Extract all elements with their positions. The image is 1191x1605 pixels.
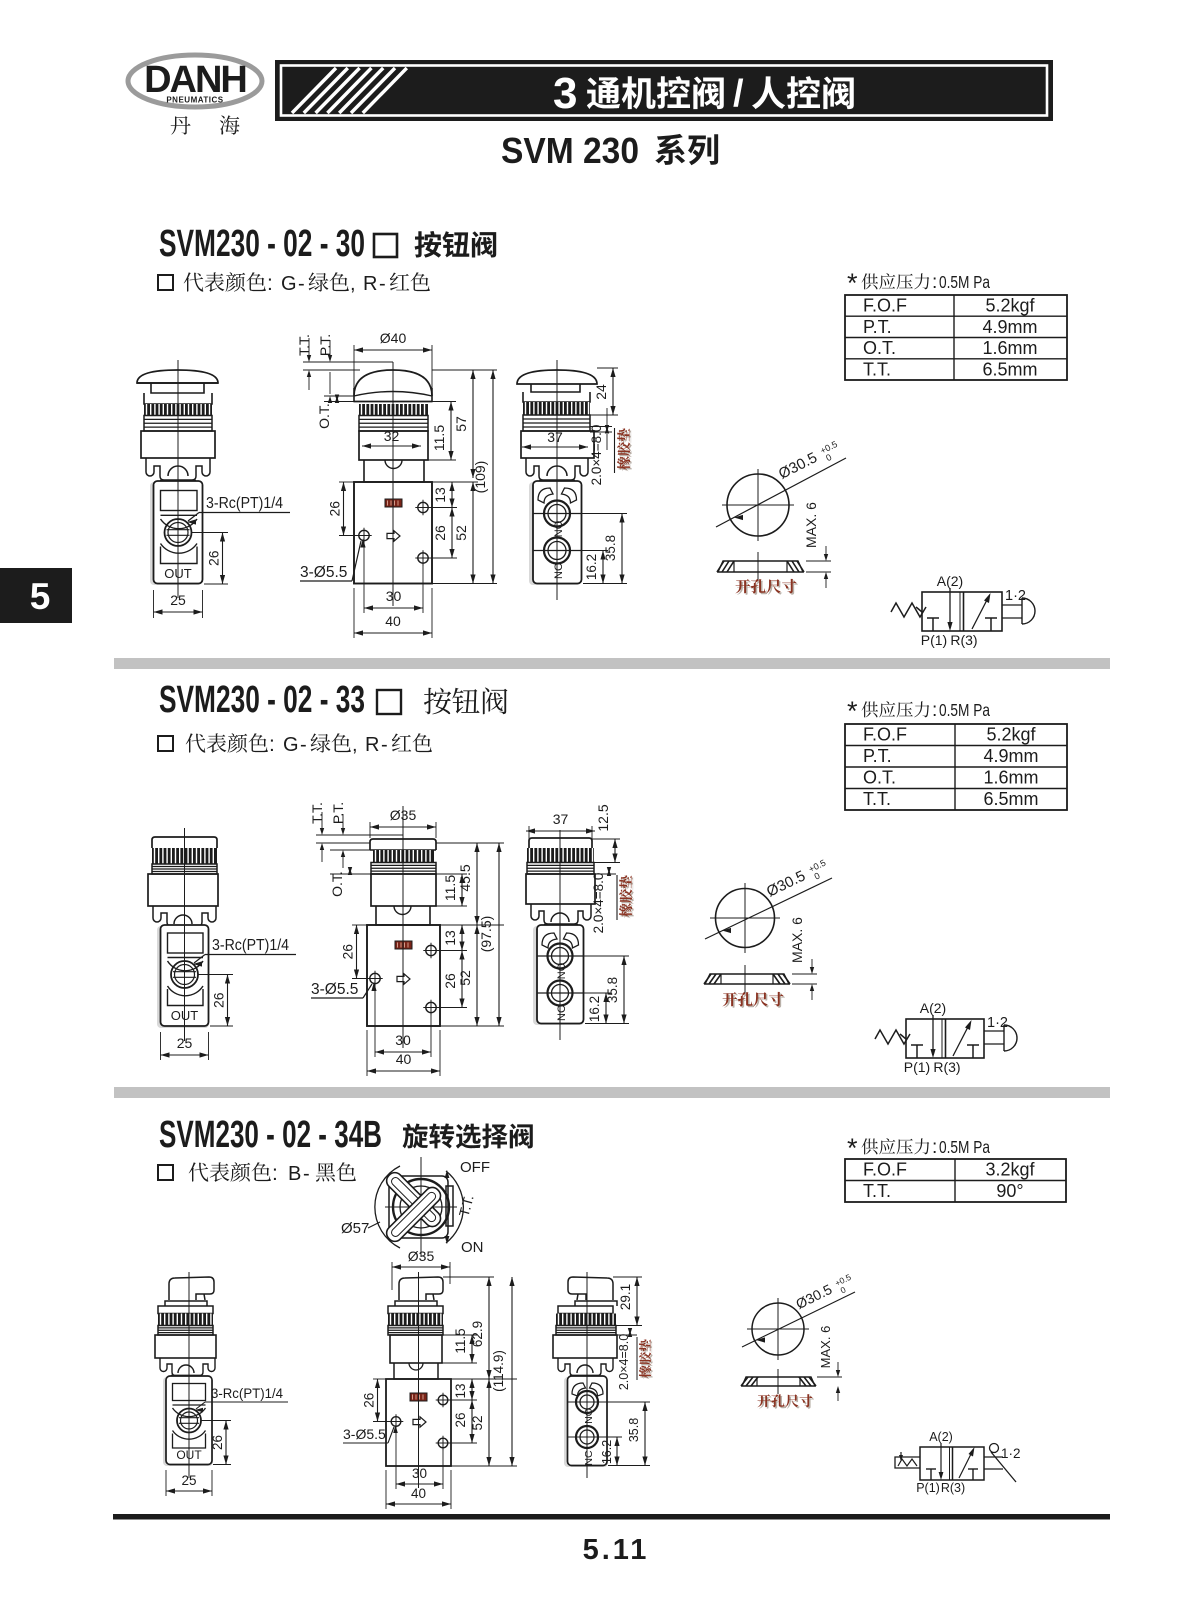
svg-text:F.O.F: F.O.F (863, 725, 907, 745)
svg-text:/: / (733, 73, 744, 115)
svg-text:3-Rc(PT)1/4: 3-Rc(PT)1/4 (211, 1385, 283, 1401)
svg-text:Ø40: Ø40 (380, 330, 407, 346)
svg-text:26: 26 (432, 525, 448, 541)
svg-text:2.0×4=8.0: 2.0×4=8.0 (589, 425, 604, 486)
svg-text:P(1): P(1) (921, 632, 947, 648)
svg-text:0.5M Pa: 0.5M Pa (939, 700, 990, 720)
svg-text:T.T.: T.T. (309, 802, 325, 824)
svg-text:Ø35: Ø35 (390, 807, 417, 823)
svg-text:5.2kgf: 5.2kgf (985, 296, 1035, 316)
svg-text:4.9mm: 4.9mm (982, 317, 1037, 337)
svg-text:P.T.: P.T. (317, 334, 333, 356)
svg-text:25: 25 (170, 592, 186, 608)
svg-text:40: 40 (385, 613, 401, 629)
svg-text:5.2kgf: 5.2kgf (986, 725, 1036, 745)
svg-text:90°: 90° (996, 1181, 1023, 1201)
svg-text:-: - (300, 734, 307, 756)
svg-text:SVM230 - 02 - 30: SVM230 - 02 - 30 (159, 223, 365, 265)
svg-text:-: - (379, 273, 386, 295)
svg-text:45.5: 45.5 (457, 864, 473, 891)
svg-text:26: 26 (327, 501, 343, 517)
svg-text:O.T.: O.T. (863, 338, 896, 358)
svg-text:-: - (303, 1163, 310, 1185)
svg-text:24: 24 (593, 384, 609, 400)
svg-text:P.T.: P.T. (863, 746, 892, 766)
svg-text:F.O.F: F.O.F (863, 296, 907, 316)
svg-text:NO: NO (553, 520, 565, 537)
svg-text:40: 40 (411, 1486, 426, 1501)
svg-text:NO: NO (556, 962, 568, 979)
svg-text:R(3): R(3) (933, 1059, 960, 1075)
svg-text:26: 26 (210, 1435, 225, 1450)
svg-text:,: , (350, 273, 356, 295)
svg-text::: : (932, 272, 937, 293)
svg-text:26: 26 (362, 1393, 377, 1408)
svg-text:(97.5): (97.5) (478, 916, 494, 953)
svg-text:6.5mm: 6.5mm (983, 789, 1038, 809)
svg-text:62.9: 62.9 (470, 1321, 485, 1347)
svg-text:A(2): A(2) (929, 1430, 953, 1444)
svg-text:ON: ON (461, 1239, 484, 1256)
svg-text:26: 26 (453, 1412, 468, 1427)
svg-text:(114.9): (114.9) (491, 1350, 506, 1392)
svg-text:R: R (365, 734, 379, 756)
svg-text:P(1): P(1) (904, 1059, 930, 1075)
svg-text:G: G (281, 273, 297, 295)
svg-text:32: 32 (384, 428, 400, 444)
svg-text:37: 37 (547, 429, 563, 445)
svg-text::: : (267, 272, 273, 295)
svg-text:*: * (847, 268, 858, 298)
svg-text:26: 26 (206, 550, 222, 566)
svg-text:3-Ø5.5: 3-Ø5.5 (343, 1426, 386, 1442)
svg-text:2.0×4=8.0: 2.0×4=8.0 (591, 873, 606, 934)
svg-text:16.2: 16.2 (587, 996, 602, 1022)
svg-text:NC: NC (556, 1005, 568, 1021)
svg-text:26: 26 (211, 992, 227, 1008)
svg-text:16.2: 16.2 (600, 1440, 614, 1464)
svg-text:57: 57 (453, 416, 469, 432)
svg-text:25: 25 (177, 1035, 193, 1051)
svg-text:11.5: 11.5 (442, 875, 458, 901)
svg-text:40: 40 (396, 1051, 412, 1067)
svg-text:OFF: OFF (460, 1159, 490, 1176)
svg-text::: : (932, 700, 937, 721)
svg-text:R(3): R(3) (941, 1481, 965, 1495)
svg-text:13: 13 (442, 930, 458, 946)
svg-text:35.8: 35.8 (627, 1418, 641, 1442)
svg-text:Ø57: Ø57 (341, 1220, 369, 1237)
svg-text:3: 3 (553, 69, 577, 118)
svg-text:SVM230 - 02 - 33: SVM230 - 02 - 33 (159, 679, 365, 721)
svg-text:F.O.F: F.O.F (863, 1160, 907, 1180)
svg-text:52: 52 (470, 1415, 485, 1430)
svg-text:26: 26 (340, 944, 356, 960)
svg-text:1·2: 1·2 (1005, 588, 1026, 604)
svg-text:6.5mm: 6.5mm (982, 359, 1037, 379)
svg-text:1.6mm: 1.6mm (982, 338, 1037, 358)
svg-text:A(2): A(2) (920, 1000, 946, 1016)
svg-text:30: 30 (412, 1466, 427, 1481)
svg-text:13: 13 (453, 1383, 468, 1398)
svg-text:11.5: 11.5 (453, 1328, 468, 1353)
svg-text:-: - (298, 273, 305, 295)
svg-text:52: 52 (453, 525, 469, 541)
svg-text:SVM 230: SVM 230 (501, 130, 639, 171)
svg-text:3-Ø5.5: 3-Ø5.5 (300, 564, 347, 581)
svg-text:3-Rc(PT)1/4: 3-Rc(PT)1/4 (212, 937, 289, 954)
svg-text:,: , (352, 734, 358, 756)
svg-text:3-Ø5.5: 3-Ø5.5 (311, 981, 358, 998)
svg-text:3-Rc(PT)1/4: 3-Rc(PT)1/4 (206, 495, 283, 512)
svg-text:SVM230 - 02 - 34B: SVM230 - 02 - 34B (159, 1114, 382, 1156)
svg-text:12.5: 12.5 (595, 804, 611, 831)
svg-text:2.0×4=8.0: 2.0×4=8.0 (617, 1334, 631, 1390)
svg-text:26: 26 (442, 973, 458, 989)
svg-text:B: B (288, 1163, 301, 1185)
svg-text:37: 37 (553, 811, 569, 827)
svg-text:NC: NC (553, 563, 565, 579)
svg-text:R(3): R(3) (950, 632, 977, 648)
svg-text:-: - (381, 734, 388, 756)
svg-text:1·2: 1·2 (1001, 1446, 1021, 1461)
svg-text:35.8: 35.8 (605, 977, 620, 1003)
svg-text:35.8: 35.8 (603, 535, 618, 561)
svg-text:P(1): P(1) (916, 1481, 940, 1495)
svg-text:25: 25 (181, 1473, 196, 1488)
svg-text:*: * (847, 696, 858, 726)
svg-text:T.T.: T.T. (863, 1181, 891, 1201)
svg-text::: : (932, 1137, 937, 1158)
svg-text:16.2: 16.2 (584, 554, 599, 580)
svg-text:5.11: 5.11 (583, 1534, 650, 1566)
svg-text:30: 30 (386, 588, 402, 604)
svg-text:P.T.: P.T. (863, 317, 892, 337)
svg-text:A(2): A(2) (937, 573, 963, 589)
svg-text:11.5: 11.5 (431, 425, 447, 451)
svg-text:4.9mm: 4.9mm (983, 746, 1038, 766)
svg-text:G: G (283, 734, 299, 756)
svg-text:3.2kgf: 3.2kgf (985, 1160, 1035, 1180)
svg-text:O.T.: O.T. (329, 871, 345, 897)
svg-text:29.1: 29.1 (618, 1284, 633, 1310)
svg-text:0.5M Pa: 0.5M Pa (939, 1137, 990, 1157)
svg-text:P.T.: P.T. (330, 802, 346, 824)
svg-text::: : (269, 733, 275, 756)
svg-text:0.5M Pa: 0.5M Pa (939, 272, 990, 292)
svg-text:MAX. 6: MAX. 6 (789, 917, 805, 963)
svg-text:O.T.: O.T. (316, 403, 332, 429)
svg-text:T.T.: T.T. (296, 334, 312, 356)
svg-text:MAX. 6: MAX. 6 (818, 1326, 833, 1369)
svg-text::: : (272, 1162, 278, 1185)
svg-text:Ø35: Ø35 (408, 1248, 435, 1264)
svg-text:1.6mm: 1.6mm (983, 768, 1038, 788)
svg-text:5: 5 (30, 576, 51, 617)
svg-text:1·2: 1·2 (987, 1015, 1008, 1031)
svg-text:NO: NO (583, 1408, 595, 1424)
svg-text:13: 13 (432, 487, 448, 503)
svg-text:T.T.: T.T. (863, 789, 891, 809)
svg-text:(109): (109) (472, 461, 488, 494)
svg-text:NC: NC (583, 1450, 595, 1466)
svg-text:O.T.: O.T. (863, 768, 896, 788)
svg-text:52: 52 (457, 970, 473, 986)
svg-text:MAX. 6: MAX. 6 (803, 502, 819, 548)
svg-text:R: R (363, 273, 377, 295)
svg-text:T.T.: T.T. (863, 359, 891, 379)
svg-text:PNEUMATICS: PNEUMATICS (166, 96, 223, 105)
svg-text:30: 30 (395, 1032, 411, 1048)
